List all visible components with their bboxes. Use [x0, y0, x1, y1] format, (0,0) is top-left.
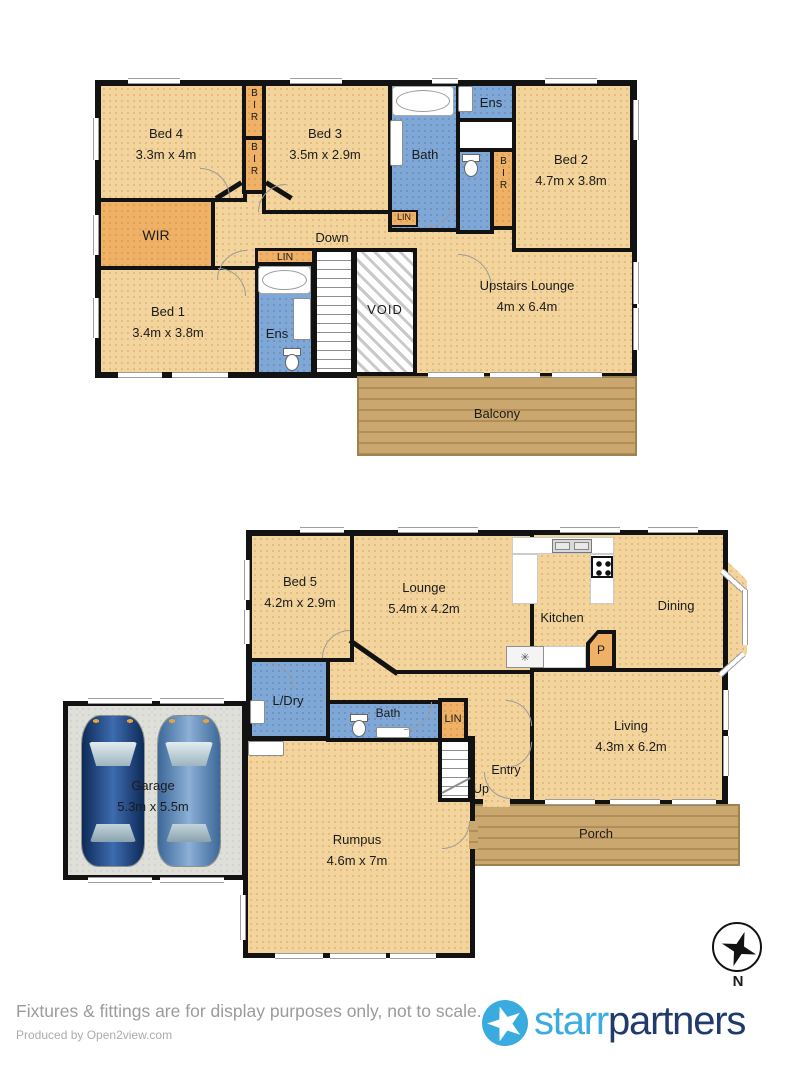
lounge-ground-dims: 5.4m x 4.2m: [388, 599, 460, 620]
label-bir-c: BIR: [498, 156, 509, 192]
window: [633, 262, 639, 304]
window: [545, 78, 597, 84]
window: [633, 308, 639, 350]
starrpartners-logo-text: starrpartners: [534, 998, 745, 1044]
window: [490, 372, 540, 378]
label-ens-bed2: Ens: [480, 93, 502, 114]
bed1-name: Bed 1: [132, 302, 204, 323]
compass-rose: [712, 922, 762, 972]
compass-star: [716, 926, 761, 971]
entry-door-opening: [483, 798, 510, 807]
window: [672, 799, 716, 805]
window: [648, 527, 698, 533]
window: [275, 953, 323, 959]
laundry-tub: [250, 700, 265, 724]
bathtub-ens-bed1: [258, 266, 311, 294]
window: [244, 560, 250, 600]
vanity-ens-bed1: [293, 298, 311, 340]
bed2-name: Bed 2: [535, 150, 607, 171]
bed1-dims: 3.4m x 3.8m: [132, 323, 204, 344]
toilet-ens-bed1: [283, 348, 299, 372]
vanity-bath-upper: [390, 120, 403, 166]
label-down: Down: [315, 228, 348, 249]
window: [160, 698, 224, 704]
rumpus-name: Rumpus: [327, 830, 388, 851]
lounge-ground-name: Lounge: [388, 578, 460, 599]
rumpus-dims: 4.6m x 7m: [327, 851, 388, 872]
window: [610, 799, 660, 805]
window: [93, 298, 99, 338]
porch-door-opening: [469, 821, 478, 849]
label-garage: Garage 5.3m x 5.5m: [117, 776, 189, 818]
starrpartners-logo-icon: [482, 1000, 528, 1046]
label-balcony: Balcony: [474, 404, 520, 425]
garage-door: [160, 877, 224, 883]
label-lin-lower: LIN: [277, 251, 293, 264]
window: [240, 895, 246, 940]
window: [560, 527, 620, 533]
label-dining: Dining: [658, 596, 695, 617]
label-bed5: Bed 5 4.2m x 2.9m: [264, 572, 336, 614]
brand-partners: partners: [608, 999, 745, 1043]
label-entry: Entry: [491, 760, 520, 780]
fridge-icon: ✳: [506, 646, 544, 668]
window: [390, 953, 436, 959]
window: [244, 610, 250, 644]
window: [723, 736, 729, 776]
logo-star-cutout: [482, 1000, 527, 1045]
label-living: Living 4.3m x 6.2m: [595, 716, 667, 758]
bay-window: [742, 590, 748, 645]
bed3-name: Bed 3: [289, 124, 361, 145]
label-bir-a: BIR: [249, 88, 260, 124]
produced-by-text: Produced by Open2view.com: [16, 1028, 172, 1042]
bed5-name: Bed 5: [264, 572, 336, 593]
window: [118, 372, 162, 378]
label-lounge-ground: Lounge 5.4m x 4.2m: [388, 578, 460, 620]
window: [428, 372, 484, 378]
label-bir-b: BIR: [249, 142, 260, 178]
garage-name: Garage: [117, 776, 189, 797]
window: [172, 372, 228, 378]
toilet-bath-ground: [350, 714, 366, 738]
window: [545, 799, 595, 805]
bed4-dims: 3.3m x 4m: [136, 145, 197, 166]
bed3-dims: 3.5m x 2.9m: [289, 145, 361, 166]
window: [290, 78, 342, 84]
window: [93, 215, 99, 255]
kitchen-sink: [552, 539, 592, 553]
label-up: Up: [473, 779, 489, 799]
label-upstairs-lounge: Upstairs Lounge 4m x 6.4m: [480, 276, 575, 318]
label-lin-bath: LIN: [397, 213, 411, 223]
label-lin-ground: LIN: [444, 713, 461, 726]
label-kitchen: Kitchen: [540, 608, 583, 629]
upstairs-lounge-name: Upstairs Lounge: [480, 276, 575, 297]
window: [93, 118, 99, 160]
label-bath-upper: Bath: [412, 145, 439, 166]
label-porch: Porch: [579, 824, 613, 845]
living-name: Living: [595, 716, 667, 737]
compass-north-label: N: [733, 970, 744, 994]
label-ldry: L/Dry: [272, 691, 303, 712]
kitchen-counter-left: [512, 554, 538, 604]
window: [330, 953, 386, 959]
upstairs-lounge-dims: 4m x 6.4m: [480, 297, 575, 318]
bed5-dims: 4.2m x 2.9m: [264, 593, 336, 614]
brand-starr: starr: [534, 999, 608, 1043]
label-bed4: Bed 4 3.3m x 4m: [136, 124, 197, 166]
label-wir: WIR: [142, 224, 169, 246]
label-bed2: Bed 2 4.7m x 3.8m: [535, 150, 607, 192]
window: [633, 100, 639, 140]
living-dims: 4.3m x 6.2m: [595, 737, 667, 758]
window: [432, 78, 458, 84]
window: [723, 690, 729, 730]
sink-ens-bed2: [458, 86, 473, 112]
stairs-down: [313, 248, 355, 376]
disclaimer-text: Fixtures & fittings are for display purp…: [16, 1001, 482, 1022]
window: [300, 527, 344, 533]
garage-dims: 5.3m x 5.5m: [117, 797, 189, 818]
bathtub-upper: [392, 86, 454, 116]
label-bed1: Bed 1 3.4m x 3.8m: [132, 302, 204, 344]
stove-cooktop: [591, 556, 613, 578]
label-pantry: P: [590, 634, 612, 666]
window: [128, 78, 180, 84]
shower-area: [456, 118, 516, 152]
window: [552, 372, 602, 378]
label-ens-bed1: Ens: [266, 324, 288, 345]
window: [88, 698, 152, 704]
label-bed3: Bed 3 3.5m x 2.9m: [289, 124, 361, 166]
bed2-dims: 4.7m x 3.8m: [535, 171, 607, 192]
window: [398, 527, 478, 533]
toilet-wc-strip: [462, 154, 478, 178]
bed4-name: Bed 4: [136, 124, 197, 145]
label-rumpus: Rumpus 4.6m x 7m: [327, 830, 388, 872]
label-bath-ground: Bath: [376, 704, 401, 723]
label-void: VOID: [367, 300, 403, 321]
garage-door: [88, 877, 152, 883]
floorplan-page: Bed 4 3.3m x 4m Bed 3 3.5m x 2.9m Bath E…: [0, 0, 800, 1066]
rumpus-cabinet: [248, 741, 284, 756]
